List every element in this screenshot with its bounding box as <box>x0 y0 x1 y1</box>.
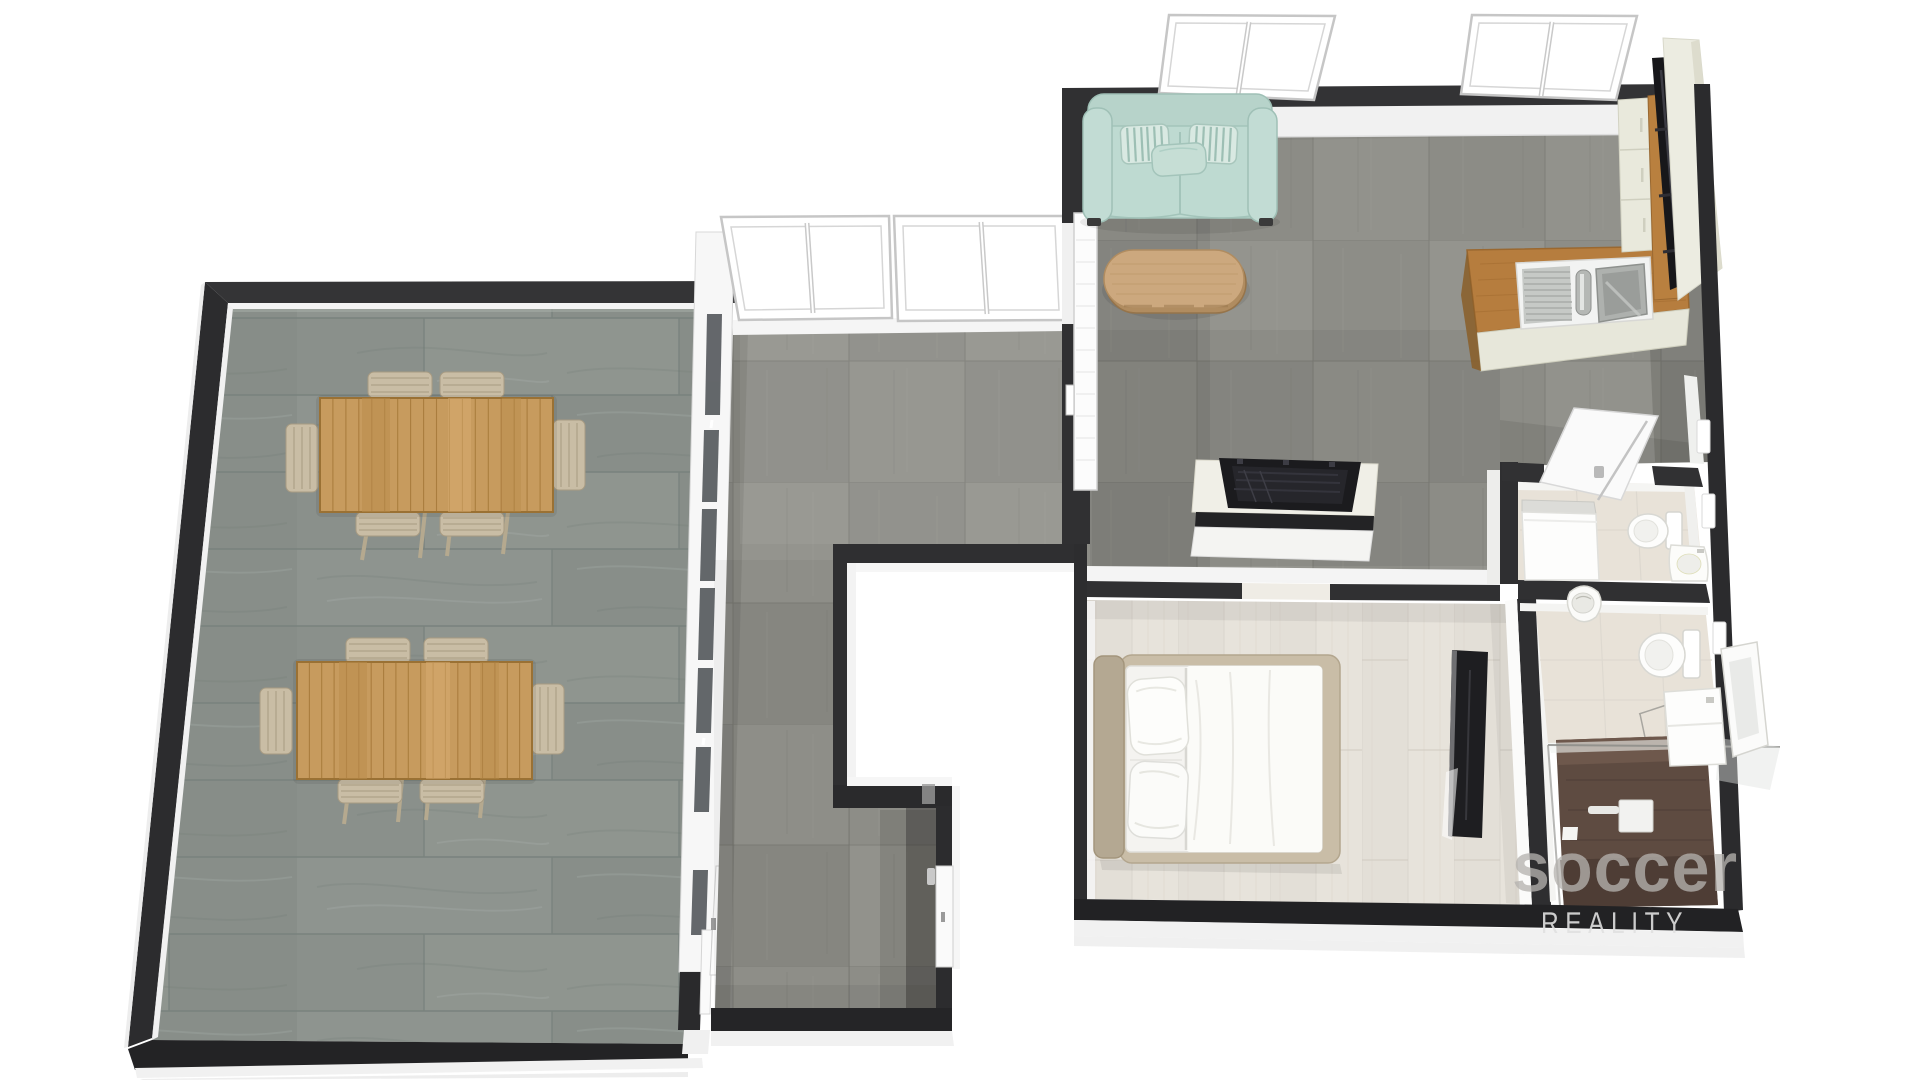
svg-text:REALITY: REALITY <box>1541 907 1689 940</box>
svg-text:soccer: soccer <box>1512 828 1738 906</box>
